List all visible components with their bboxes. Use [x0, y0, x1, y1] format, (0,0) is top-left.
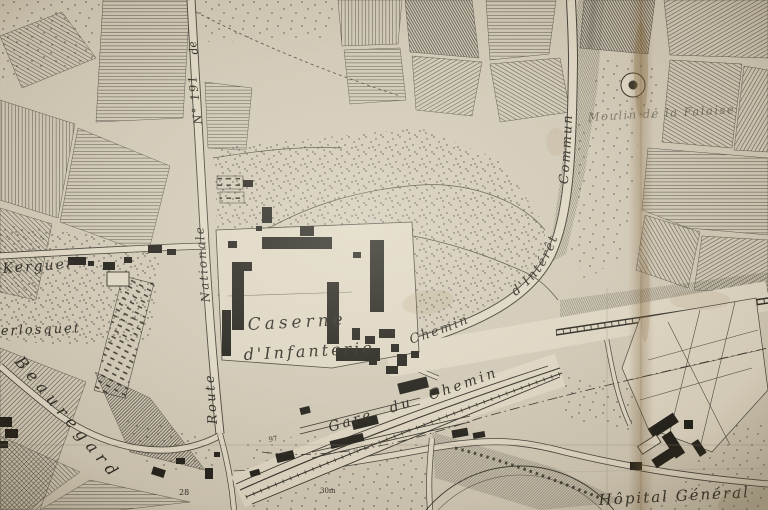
paper-aging — [0, 0, 768, 510]
map-canvas: Caserne d'Infanterie — [0, 0, 768, 510]
scanned-map: Caserne d'Infanterie — [0, 0, 768, 510]
vignette — [0, 0, 768, 510]
